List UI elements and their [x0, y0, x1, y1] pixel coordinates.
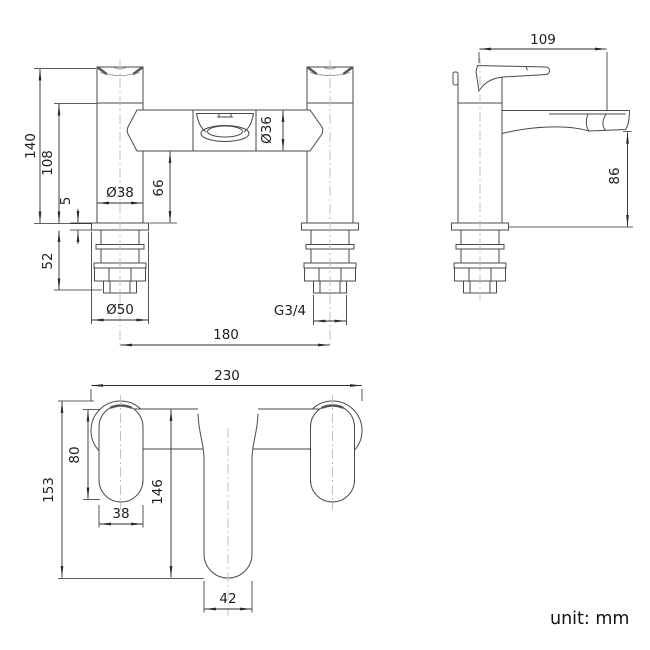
dim-flange-diameter-label: Ø50 [106, 302, 134, 318]
unit-note: unit: mm [550, 609, 629, 629]
dim-tap-centres-label: 180 [213, 327, 239, 343]
dim-shank-length-label: 52 [40, 252, 56, 269]
front-crossbar-body [127, 110, 323, 151]
side-view: 109 86 [452, 32, 634, 300]
drawing-svg: 140 108 5 52 Ø38 66 Ø36 [0, 0, 650, 650]
side-handle-lever [476, 66, 549, 92]
dim-under-body-height-label: 66 [151, 179, 167, 196]
dim-overall-width-label: 230 [214, 368, 240, 384]
side-handle-pivot [453, 72, 458, 85]
dim-body-height-label: 108 [40, 150, 56, 176]
dim-spout-outlet-height-label: 86 [607, 167, 623, 184]
front-view: 140 108 5 52 Ø38 66 Ø36 [23, 60, 359, 347]
plan-left-handle [99, 405, 143, 502]
dim-spout-reach-label: 109 [530, 32, 556, 48]
plan-view: 230 153 80 146 38 42 [41, 368, 362, 616]
dim-pillar-diameter-label: Ø38 [106, 185, 134, 201]
dim-spout-projection-label: 146 [150, 479, 166, 505]
dim-deck-plate-thickness-label: 5 [58, 197, 74, 206]
dim-total-height-label: 140 [23, 133, 39, 159]
dim-overall-depth-label: 153 [41, 477, 57, 503]
dim-thread-size-label: G3/4 [274, 303, 306, 319]
dim-handle-width-label: 38 [112, 506, 129, 522]
technical-drawing-canvas: 140 108 5 52 Ø38 66 Ø36 [0, 0, 650, 650]
dim-handle-length-label: 80 [67, 446, 83, 463]
side-spout [502, 111, 630, 134]
dim-body-diameter-label: Ø36 [259, 116, 275, 144]
dim-spout-width-label: 42 [219, 591, 236, 607]
